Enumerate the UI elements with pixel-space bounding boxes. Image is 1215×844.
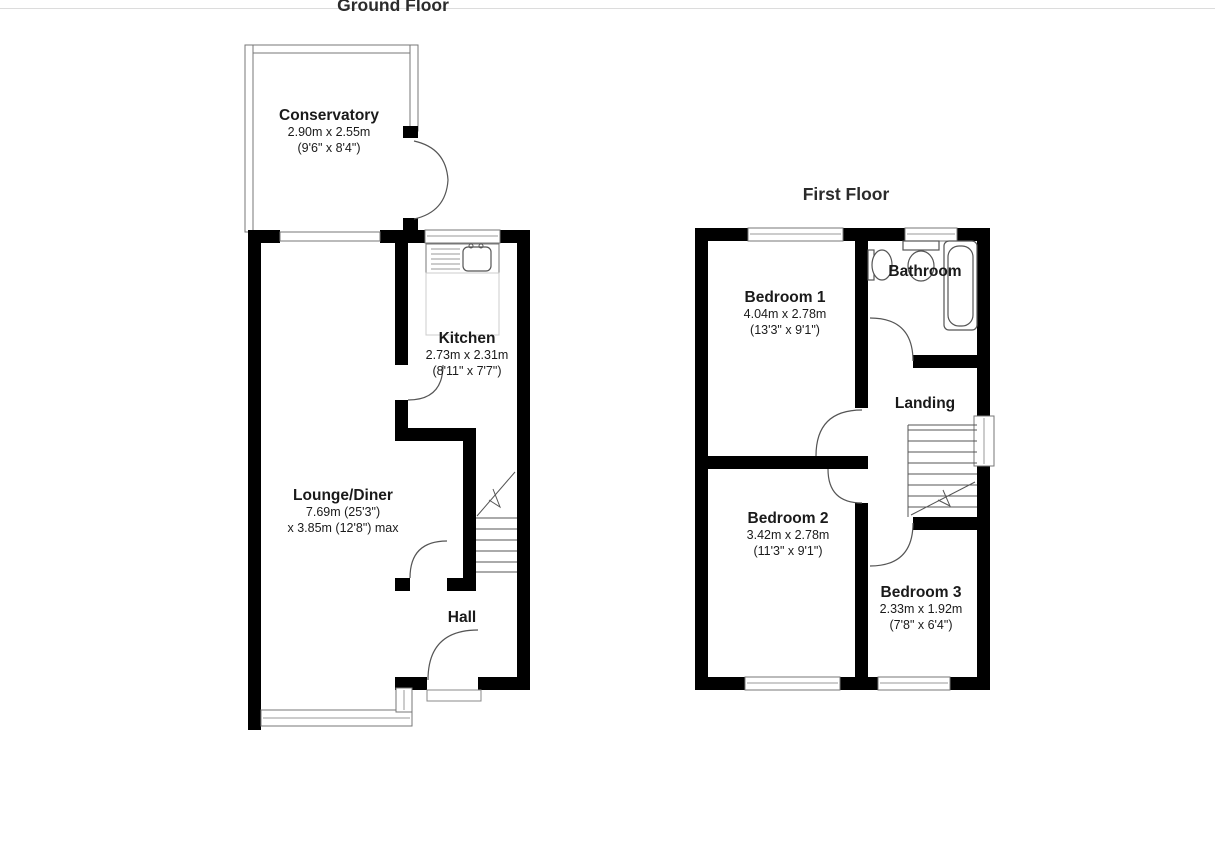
front-door-step xyxy=(427,690,481,701)
floorplan-drawing xyxy=(0,0,1215,844)
room-name: Conservatory xyxy=(279,106,379,125)
room-dimensions-metric: 2.73m x 2.31m xyxy=(426,348,509,364)
room-label-bedroom-3: Bedroom 3 2.33m x 1.92m (7'8" x 6'4") xyxy=(880,583,963,633)
room-dimensions-imperial: (7'8" x 6'4") xyxy=(880,618,963,634)
ground-floor-stairs xyxy=(476,472,517,572)
room-name: Landing xyxy=(895,394,955,413)
room-dimensions-metric: 2.33m x 1.92m xyxy=(880,602,963,618)
room-name: Bedroom 2 xyxy=(747,509,830,528)
room-label-landing: Landing xyxy=(895,394,955,413)
ground-floor-title: Ground Floor xyxy=(337,0,449,16)
ground-floor-window-glazing-lines xyxy=(263,236,498,718)
room-dimensions-metric: 3.42m x 2.78m xyxy=(747,528,830,544)
room-dimensions-metric: 4.04m x 2.78m xyxy=(744,307,827,323)
room-label-bedroom-1: Bedroom 1 4.04m x 2.78m (13'3" x 9'1") xyxy=(744,288,827,338)
room-name: Bathroom xyxy=(888,262,961,281)
room-name: Bedroom 1 xyxy=(744,288,827,307)
room-name: Bedroom 3 xyxy=(880,583,963,602)
ground-floor-walls xyxy=(248,230,530,730)
room-label-conservatory: Conservatory 2.90m x 2.55m (9'6" x 8'4") xyxy=(279,106,379,156)
room-label-bathroom: Bathroom xyxy=(888,262,961,281)
room-label-hall: Hall xyxy=(448,608,476,627)
room-dimensions-metric: 7.69m (25'3") xyxy=(287,505,398,521)
room-dimensions-imperial: x 3.85m (12'8") max xyxy=(287,521,398,537)
room-dimensions-imperial: (11'3" x 9'1") xyxy=(747,544,830,560)
floorplan-page: Ground Floor First Floor Conservatory 2.… xyxy=(0,0,1215,844)
first-floor-stairs xyxy=(908,425,977,517)
room-name: Lounge/Diner xyxy=(287,486,398,505)
conservatory-french-doors-icon xyxy=(414,141,448,219)
first-floor-title: First Floor xyxy=(803,184,890,205)
bathtub-icon xyxy=(944,241,977,330)
kitchen-sink-icon xyxy=(426,244,499,335)
room-name: Hall xyxy=(448,608,476,627)
room-label-kitchen: Kitchen 2.73m x 2.31m (8'11" x 7'7") xyxy=(426,329,509,379)
room-dimensions-metric: 2.90m x 2.55m xyxy=(279,125,379,141)
room-dimensions-imperial: (13'3" x 9'1") xyxy=(744,323,827,339)
room-dimensions-imperial: (8'11" x 7'7") xyxy=(426,364,509,380)
room-label-lounge-diner: Lounge/Diner 7.69m (25'3") x 3.85m (12'8… xyxy=(287,486,398,536)
room-dimensions-imperial: (9'6" x 8'4") xyxy=(279,141,379,157)
room-name: Kitchen xyxy=(426,329,509,348)
room-label-bedroom-2: Bedroom 2 3.42m x 2.78m (11'3" x 9'1") xyxy=(747,509,830,559)
